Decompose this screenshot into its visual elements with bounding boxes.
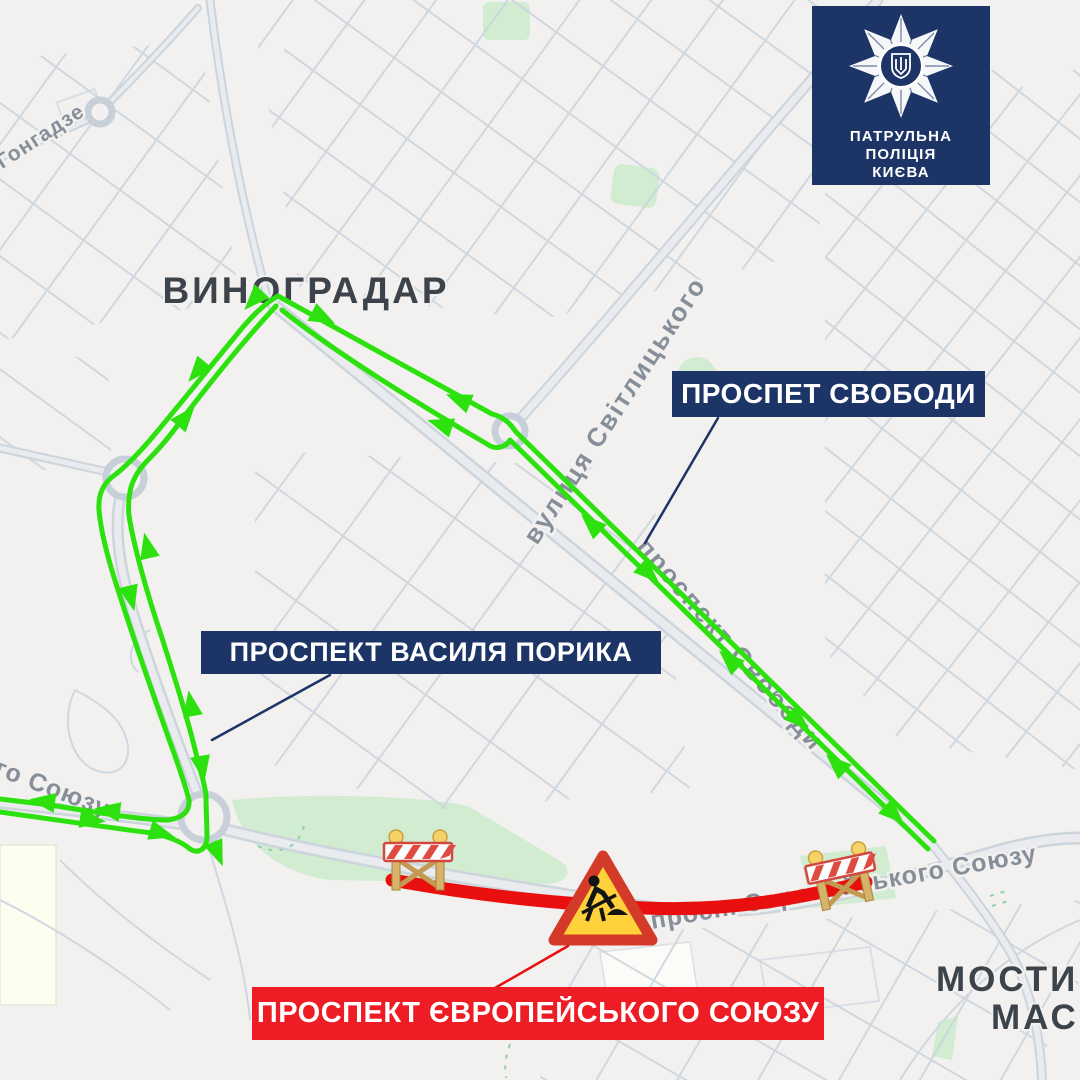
callout-prospekt-vasylya-poryka: ПРОСПЕКТ ВАСИЛЯ ПОРИКА (201, 631, 661, 674)
district-label-mostytskyi: МОСТИЦЬКИЙ (936, 959, 1080, 999)
police-star-icon (812, 6, 990, 128)
logo-text-line3: КИЄВА (872, 164, 930, 182)
logo-text-line1: ПАТРУЛЬНА (850, 128, 952, 146)
callout-prospekt-yevropeiskoho-soyuzu: ПРОСПЕКТ ЄВРОПЕЙСЬКОГО СОЮЗУ (252, 987, 824, 1040)
patrol-police-kyiv-logo: ПАТРУЛЬНА ПОЛІЦІЯ КИЄВА (812, 6, 990, 185)
district-label-vynohradar: ВИНОГРАДАР (162, 270, 449, 311)
callout-prospekt-svobody: ПРОСПЕТ СВОБОДИ (672, 371, 985, 417)
logo-text-line2: ПОЛІЦІЯ (865, 146, 936, 164)
district-label-masyv: МАСИВ (991, 998, 1080, 1037)
traffic-advisory-graphic: { "badge": { "line1": "ПАТРУЛЬНА", "line… (0, 0, 1080, 1080)
